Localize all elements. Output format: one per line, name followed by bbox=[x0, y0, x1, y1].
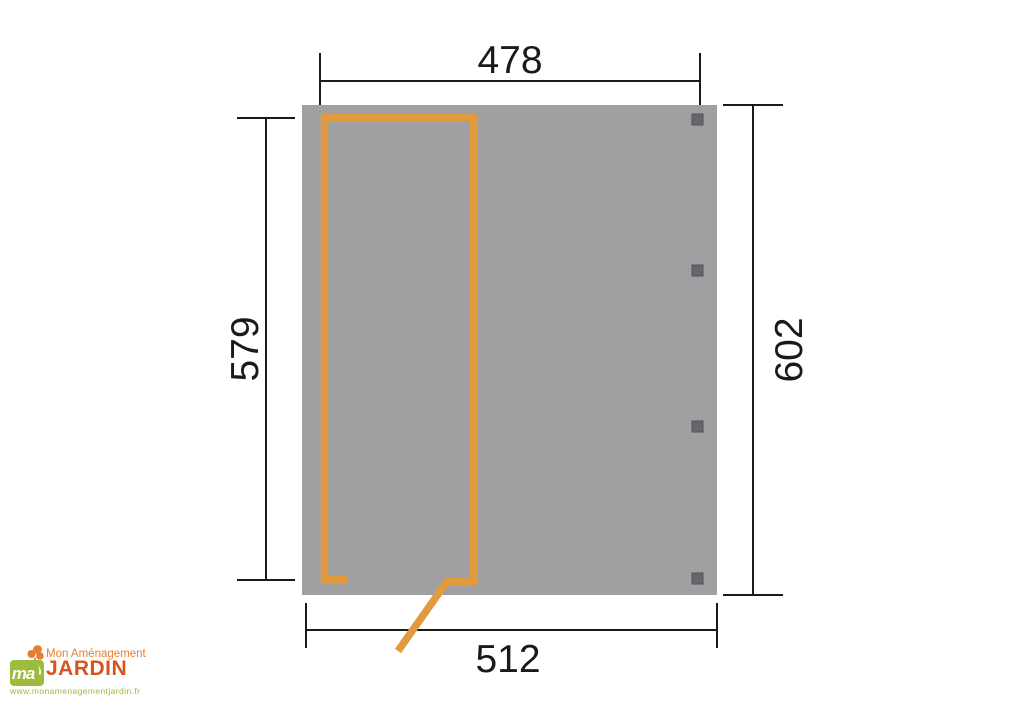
post-marker bbox=[692, 421, 703, 432]
dimension-left: 579 bbox=[224, 118, 295, 580]
leaf-icon bbox=[34, 665, 43, 675]
dimension-bottom: 512 bbox=[306, 603, 717, 681]
post-marker bbox=[692, 114, 703, 125]
diagram-canvas: 478 579 602 512 bbox=[0, 0, 1024, 705]
dim-left-label: 579 bbox=[224, 316, 267, 381]
dimension-right: 602 bbox=[723, 105, 811, 595]
dimension-drawing: 478 579 602 512 bbox=[0, 0, 1024, 705]
brand-logo: Mon Aménagement ma JARDIN www.monamenage… bbox=[10, 644, 150, 702]
dim-right-label: 602 bbox=[768, 317, 811, 382]
panel-rect bbox=[302, 105, 717, 595]
dim-top-label: 478 bbox=[477, 39, 542, 82]
post-marker bbox=[692, 265, 703, 276]
post-marker bbox=[692, 573, 703, 584]
dimension-top: 478 bbox=[320, 39, 700, 105]
dim-bottom-label: 512 bbox=[475, 638, 540, 681]
logo-monogram: ma bbox=[12, 665, 35, 682]
logo-name: JARDIN bbox=[46, 658, 127, 680]
logo-monogram-box: ma bbox=[10, 660, 44, 686]
logo-website: www.monamenagementjardin.fr bbox=[10, 686, 140, 696]
